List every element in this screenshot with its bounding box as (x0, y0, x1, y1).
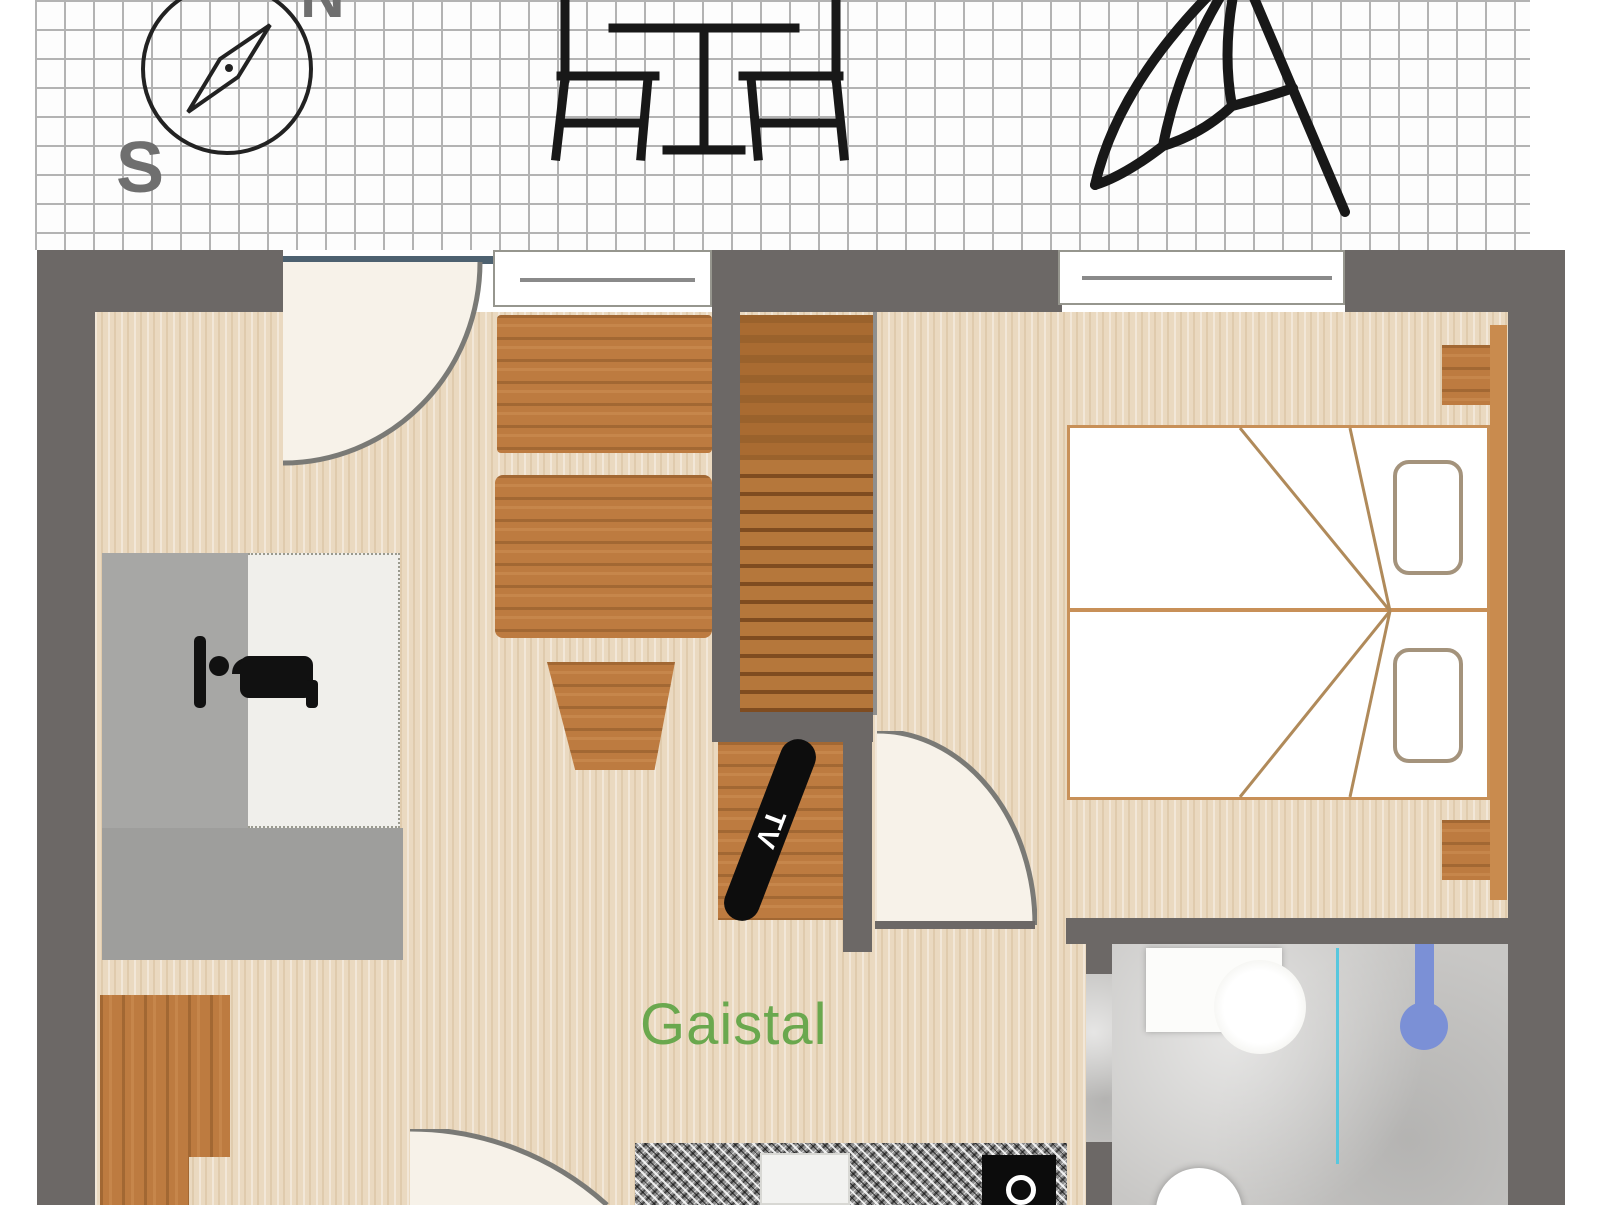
pillow-top (1393, 460, 1463, 575)
sideboard-gray (102, 828, 403, 960)
wall-left-outer (37, 250, 95, 1205)
desk-left-wall-lower (100, 1157, 189, 1205)
wall-right-outer (1508, 250, 1565, 1205)
window-bedroom-glass-line (1082, 276, 1332, 280)
desk-left-wall (100, 995, 230, 1157)
window-top-left-glass-line (520, 278, 695, 282)
table-and-chairs-icon (545, 0, 855, 165)
nightstand-bottom (1442, 820, 1490, 880)
dining-cabinet-upper (497, 315, 712, 453)
floor-plan-image: N S (0, 0, 1606, 1205)
wall-bathroom-left-upper (1086, 944, 1112, 974)
wall-stair-bottom (712, 712, 873, 742)
compass-north-label: N (300, 0, 345, 28)
room-name-label: Gaistal (640, 996, 828, 1054)
cooktop-burner-ring (1006, 1175, 1036, 1205)
wall-top-middle (712, 250, 1062, 312)
shower-arm (1415, 944, 1434, 1008)
pillow-bottom (1393, 648, 1463, 763)
wall-bedroom-divider (843, 742, 872, 952)
bed-pictogram-icon (188, 618, 323, 718)
shower-head-icon (1400, 1002, 1448, 1050)
bathroom-entry-floor (1086, 974, 1112, 1142)
sink-basin (1214, 960, 1306, 1054)
hall-door-swing (410, 1129, 610, 1205)
stairs-landing (740, 315, 873, 460)
stairs-edge-line (873, 312, 877, 715)
wall-bathroom-left-lower (1086, 1142, 1112, 1205)
nightstand-top (1442, 345, 1490, 405)
wall-top-left (37, 250, 283, 312)
wall-bathroom-top (1066, 918, 1508, 944)
shower-glass-partition (1336, 948, 1339, 1164)
bedroom-door-swing (877, 731, 1037, 927)
entry-door-swing (283, 262, 483, 466)
kitchen-sink (760, 1153, 850, 1205)
stairs-treads (740, 460, 873, 712)
wall-stair-left (712, 312, 740, 742)
bed-headboard-strip (1490, 325, 1507, 900)
dining-table (495, 475, 712, 638)
compass-south-label: S (116, 132, 164, 204)
parasol-icon (1060, 0, 1360, 218)
bedroom-door-leaf (875, 921, 1035, 929)
